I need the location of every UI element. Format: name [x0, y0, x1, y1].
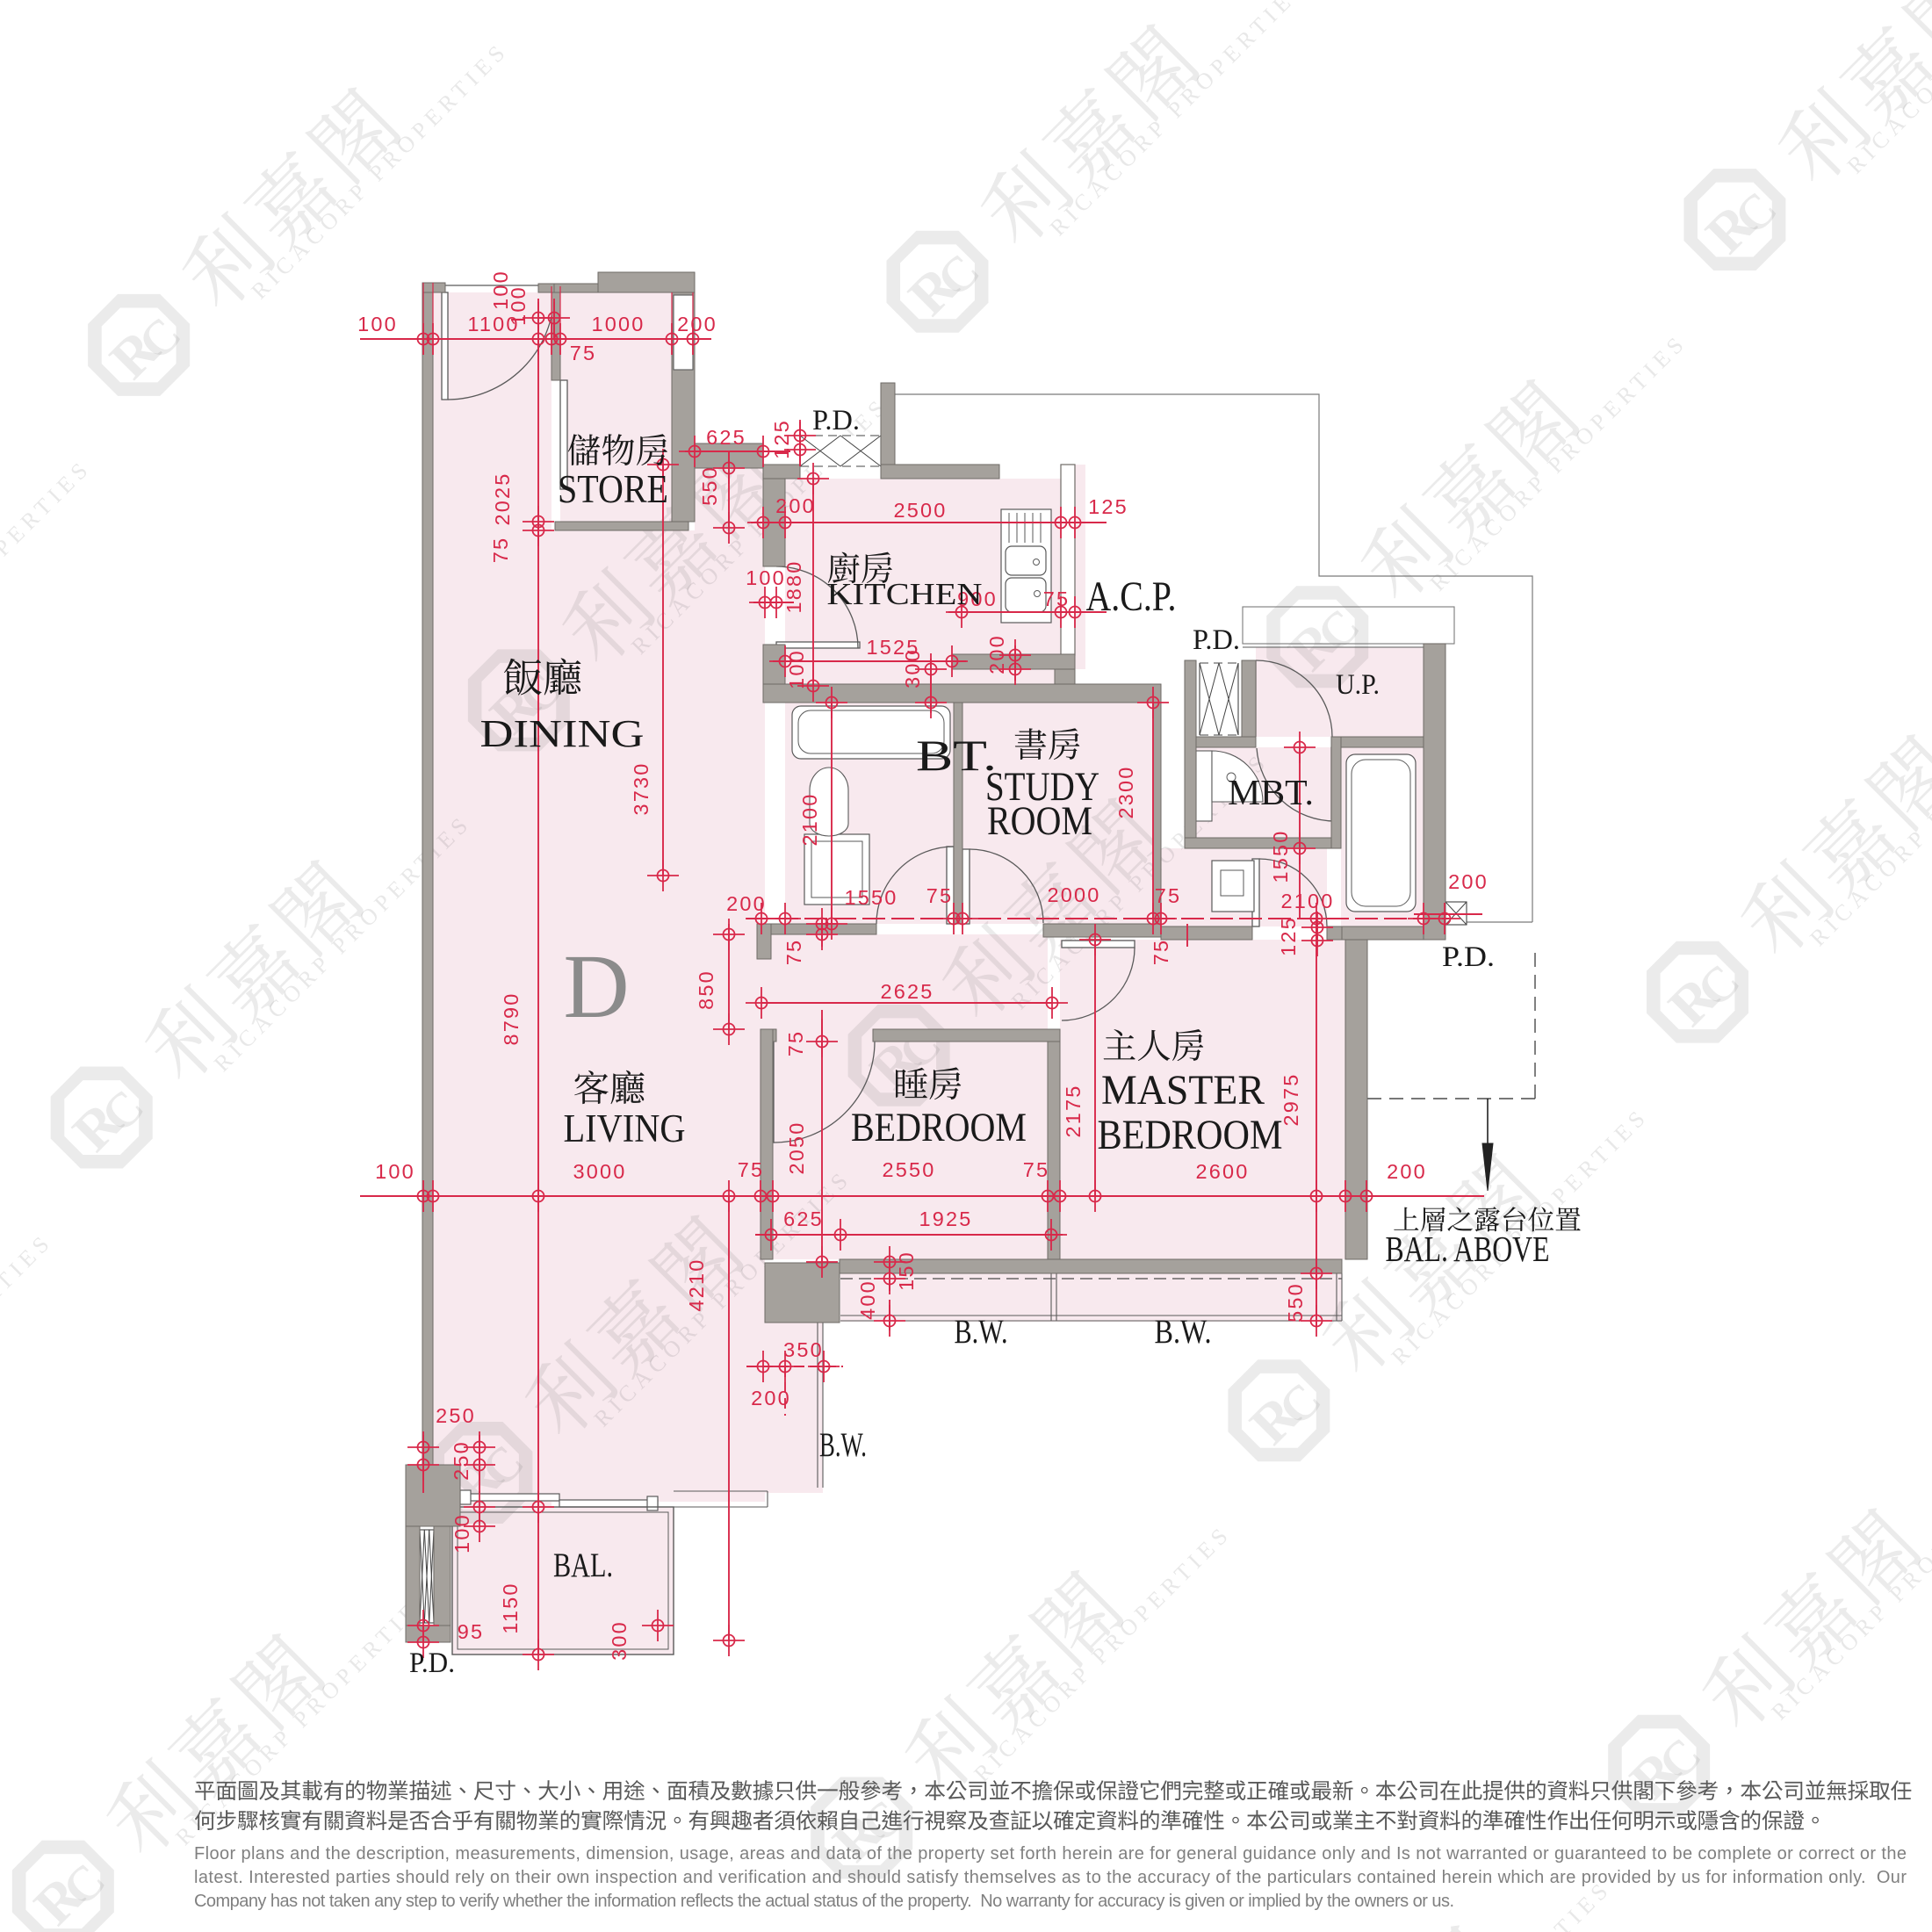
svg-text:1550: 1550: [1269, 829, 1292, 883]
svg-text:BEDROOM: BEDROOM: [851, 1105, 1027, 1150]
svg-text:100: 100: [357, 313, 398, 335]
svg-text:MASTER: MASTER: [1101, 1067, 1265, 1114]
svg-text:75: 75: [1023, 1158, 1050, 1181]
svg-text:2625: 2625: [880, 980, 934, 1003]
svg-text:P.D.: P.D.: [409, 1647, 455, 1679]
svg-text:100: 100: [375, 1160, 415, 1183]
svg-text:BEDROOM: BEDROOM: [1098, 1112, 1283, 1158]
svg-text:200: 200: [1387, 1160, 1427, 1183]
svg-text:300: 300: [608, 1620, 631, 1661]
svg-text:LIVING: LIVING: [564, 1107, 686, 1150]
svg-text:4210: 4210: [685, 1258, 708, 1311]
svg-text:200: 200: [677, 313, 717, 335]
svg-text:400: 400: [856, 1280, 879, 1320]
svg-text:75: 75: [782, 939, 805, 966]
svg-text:75: 75: [570, 342, 597, 364]
svg-text:2050: 2050: [785, 1121, 808, 1174]
svg-text:75: 75: [926, 884, 954, 907]
svg-text:2300: 2300: [1114, 765, 1137, 818]
svg-text:200: 200: [726, 892, 767, 915]
svg-text:300: 300: [901, 648, 924, 688]
svg-text:U.P.: U.P.: [1336, 669, 1380, 701]
svg-text:1550: 1550: [844, 886, 898, 909]
svg-text:2175: 2175: [1062, 1084, 1085, 1137]
svg-text:75: 75: [1155, 884, 1182, 907]
svg-text:2100: 2100: [798, 792, 821, 846]
svg-text:8790: 8790: [500, 991, 523, 1045]
svg-text:Floor plans and the descriptio: Floor plans and the description, measure…: [194, 1844, 1907, 1864]
svg-text:200: 200: [985, 634, 1008, 674]
svg-text:75: 75: [784, 1030, 807, 1057]
svg-text:200: 200: [775, 494, 816, 517]
svg-text:1925: 1925: [919, 1207, 972, 1230]
svg-text:2100: 2100: [1280, 890, 1334, 912]
svg-text:100: 100: [451, 1513, 473, 1554]
svg-text:95: 95: [458, 1620, 485, 1643]
svg-text:3730: 3730: [630, 761, 652, 815]
svg-text:75: 75: [489, 537, 512, 564]
svg-text:350: 350: [783, 1338, 824, 1361]
svg-text:100: 100: [507, 285, 530, 326]
svg-text:100: 100: [746, 566, 786, 589]
svg-text:P.D.: P.D.: [812, 405, 860, 436]
svg-text:P.D.: P.D.: [1193, 624, 1240, 656]
svg-text:BAL. ABOVE: BAL. ABOVE: [1386, 1229, 1550, 1269]
svg-text:75: 75: [738, 1158, 765, 1181]
svg-text:2600: 2600: [1195, 1160, 1249, 1183]
svg-text:550: 550: [698, 465, 721, 506]
svg-text:MBT.: MBT.: [1228, 772, 1314, 812]
svg-text:DINING: DINING: [480, 712, 645, 755]
svg-text:D: D: [563, 936, 629, 1037]
svg-text:1150: 1150: [499, 1582, 522, 1633]
svg-text:A.C.P.: A.C.P.: [1086, 573, 1177, 620]
svg-text:100: 100: [785, 649, 808, 689]
svg-text:Company has not taken any step: Company has not taken any step to verify…: [194, 1892, 1454, 1911]
svg-text:3000: 3000: [573, 1160, 626, 1183]
svg-text:250: 250: [450, 1440, 472, 1481]
svg-text:75: 75: [1150, 939, 1172, 966]
svg-text:2000: 2000: [1047, 883, 1100, 906]
svg-text:B.W.: B.W.: [1155, 1313, 1212, 1351]
svg-text:200: 200: [1448, 870, 1489, 893]
svg-text:KITCHEN: KITCHEN: [827, 577, 983, 611]
svg-text:150: 150: [895, 1251, 918, 1291]
svg-text:125: 125: [770, 419, 793, 459]
svg-text:2025: 2025: [491, 472, 514, 525]
svg-text:BAL.: BAL.: [553, 1546, 613, 1584]
svg-text:125: 125: [1277, 916, 1300, 956]
svg-text:2500: 2500: [893, 499, 947, 522]
svg-text:2550: 2550: [882, 1158, 935, 1181]
svg-text:1000: 1000: [591, 313, 645, 335]
svg-text:B.W.: B.W.: [819, 1426, 867, 1464]
svg-text:ROOM: ROOM: [987, 798, 1092, 844]
svg-text:B.W.: B.W.: [955, 1313, 1008, 1351]
svg-text:850: 850: [695, 970, 717, 1010]
svg-text:625: 625: [706, 426, 746, 449]
svg-text:550: 550: [1284, 1282, 1307, 1323]
svg-text:625: 625: [783, 1207, 824, 1230]
svg-text:P.D.: P.D.: [1442, 941, 1495, 973]
svg-text:125: 125: [1088, 495, 1128, 518]
svg-text:STORE: STORE: [558, 467, 668, 511]
svg-text:250: 250: [436, 1404, 476, 1427]
svg-text:latest. Interested parties sho: latest. Interested parties should rely o…: [194, 1868, 1907, 1887]
svg-text:75: 75: [1043, 588, 1071, 610]
svg-text:2975: 2975: [1280, 1072, 1302, 1126]
